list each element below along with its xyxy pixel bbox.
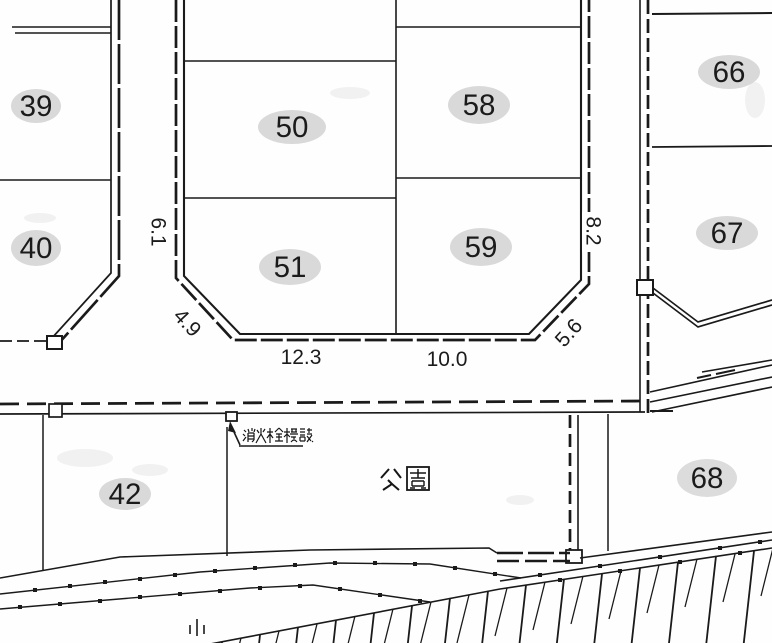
- svg-text:68: 68: [691, 462, 724, 495]
- svg-text:67: 67: [711, 217, 744, 250]
- svg-text:8.2: 8.2: [582, 216, 605, 245]
- svg-text:42: 42: [109, 478, 142, 511]
- svg-text:12.3: 12.3: [281, 346, 322, 369]
- svg-text:50: 50: [276, 111, 309, 144]
- svg-text:51: 51: [274, 251, 307, 284]
- svg-text:6.1: 6.1: [147, 217, 170, 246]
- svg-text:59: 59: [465, 231, 498, 264]
- svg-text:10.0: 10.0: [427, 348, 468, 371]
- svg-text:39: 39: [20, 90, 53, 123]
- svg-text:40: 40: [20, 232, 53, 265]
- svg-text:66: 66: [713, 56, 746, 89]
- svg-text:58: 58: [463, 89, 496, 122]
